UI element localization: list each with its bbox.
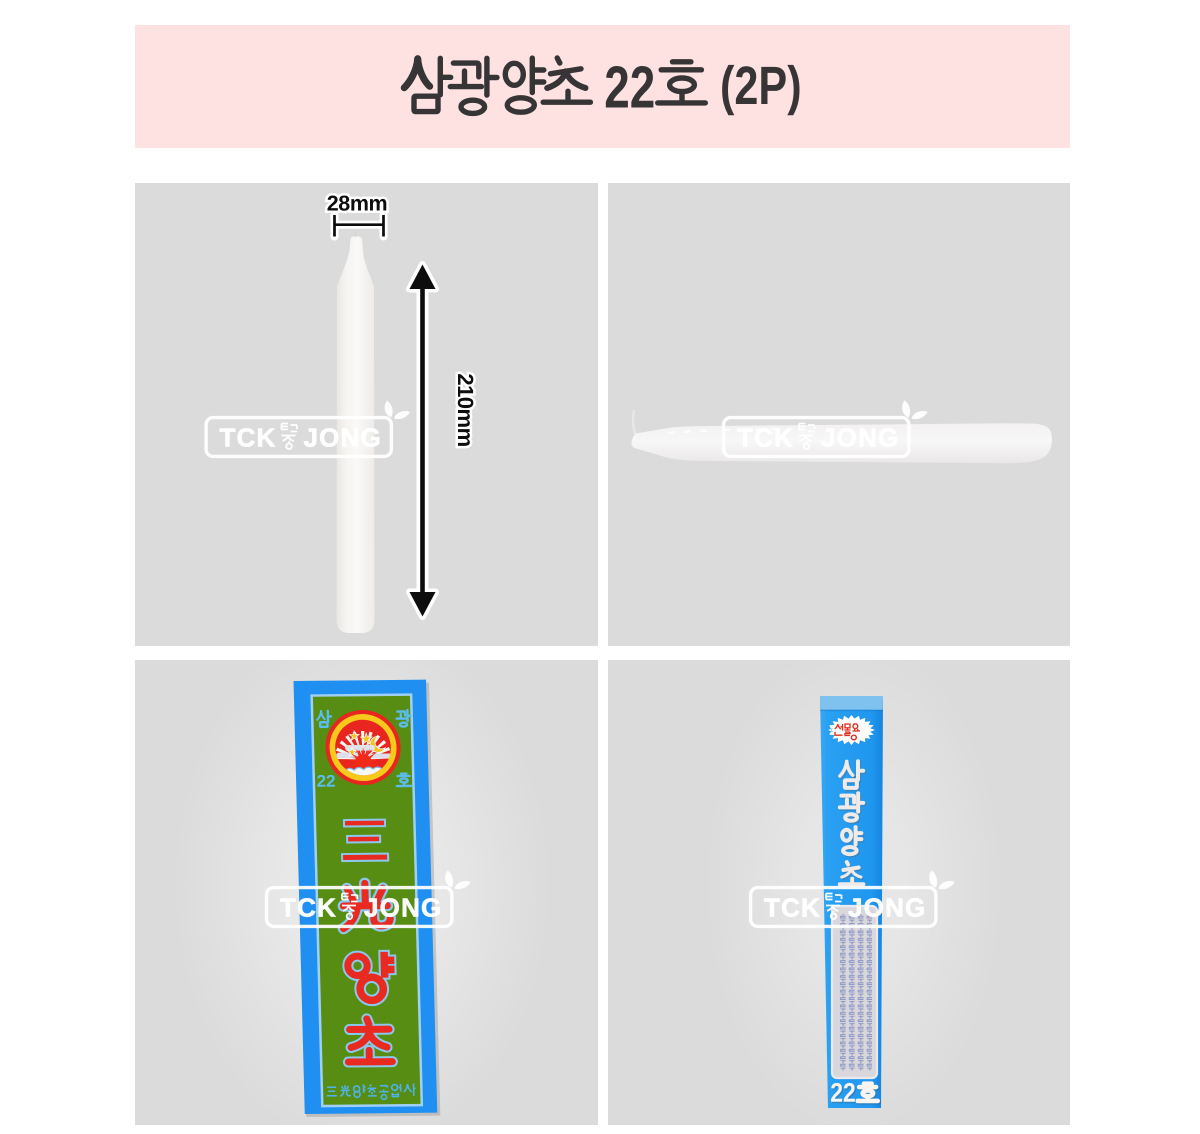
svg-text:28mm: 28mm xyxy=(327,191,388,215)
svg-text:22: 22 xyxy=(830,1078,856,1108)
svg-text:(2P): (2P) xyxy=(720,56,802,116)
svg-text:22: 22 xyxy=(316,772,335,791)
svg-text:210mm: 210mm xyxy=(453,373,478,446)
svg-text:22: 22 xyxy=(604,54,655,121)
